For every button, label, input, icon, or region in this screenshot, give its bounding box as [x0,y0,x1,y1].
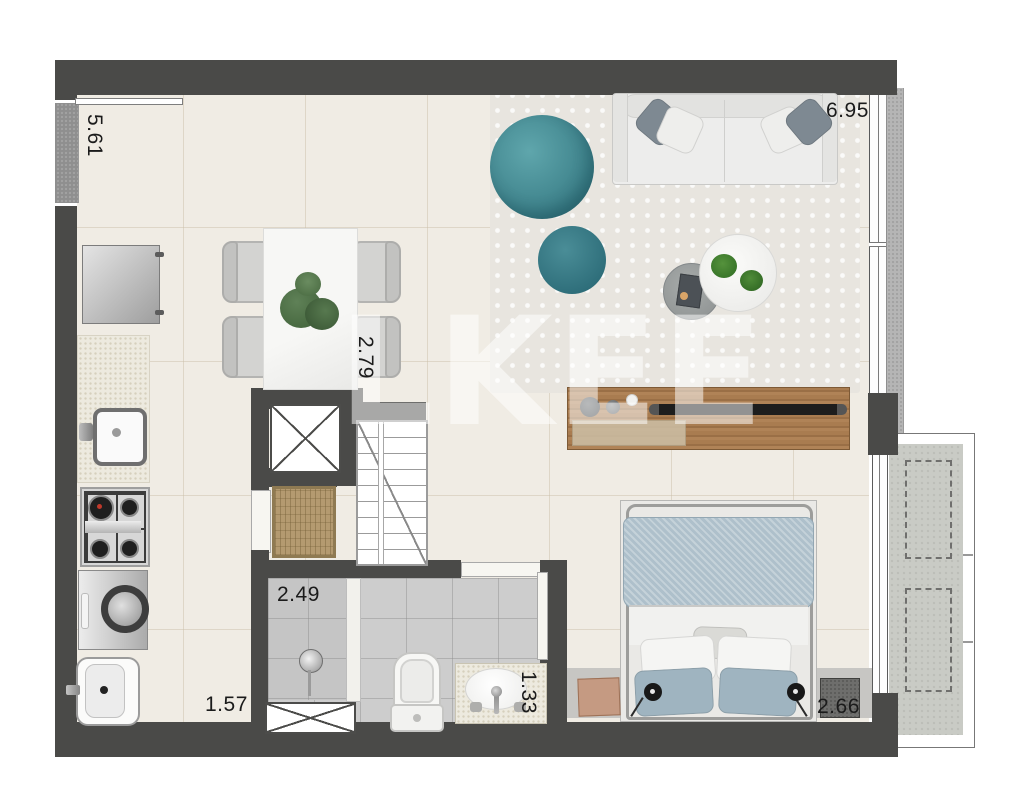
burner-rear-left [90,539,110,559]
vanity-faucet-head [491,686,502,697]
table-plant-leaf-2 [305,298,339,330]
duct-shaft [265,702,356,734]
doormat [272,486,336,558]
refrigerator-handle-bottom [155,310,164,315]
wall-bathroom-left [251,578,268,722]
reading-lamp-right [787,683,805,701]
burner-rear-right [120,539,139,558]
vanity-knob-left [470,702,482,712]
burner-knob-dot [97,504,102,509]
toilet-flush-button [413,714,421,722]
dimension-left-window: 5.61 [82,114,106,157]
washing-machine [78,570,148,650]
ottoman-small [538,226,606,294]
toilet-lid [400,659,434,703]
table-plant-leaf-3 [295,272,321,296]
floor-plan: 5.61 6.95 2.79 2.49 1.57 1.33 2.66 LKEE [0,0,1024,798]
cooktop [80,487,150,567]
refrigerator [82,245,160,324]
wall-top [55,60,897,95]
dimension-shower-width: 2.49 [277,583,320,607]
ottoman-large [490,115,594,219]
shower-glass-partition [346,578,361,702]
balcony-marking-2 [905,588,952,692]
balcony-rail-tick-2 [963,641,973,643]
kitchen-window-left [55,103,79,203]
dimension-living-width: 6.95 [826,99,869,123]
dimension-bedroom-width: 2.66 [817,695,860,719]
bathroom-door-leaf [537,572,548,660]
toilet-bowl [393,652,441,712]
watermark-text: LKEE [338,298,767,448]
wall-core-left [251,388,269,491]
reading-lamp-left [644,683,662,701]
chair-back [222,241,238,303]
tank-drain [100,686,108,694]
sofa-seat-divider [724,100,725,182]
kitchen-faucet-icon [79,423,93,441]
dimension-hall-depth: 2.79 [353,336,377,379]
pillar-right [868,393,898,455]
balcony-marking-1 [905,460,952,559]
shower-drain-icon [299,649,323,673]
window-tick-top [55,100,77,103]
exterior-wall-strip [886,88,904,433]
washer-hinge [81,593,89,629]
shower-drain-stem [308,670,311,696]
balcony-rail-tick-1 [963,554,973,556]
burner-front-right [120,498,139,517]
tank-faucet-icon [66,685,80,695]
coffee-table-plant-1 [711,254,737,278]
wall-left [55,206,77,757]
balcony-corner-block [872,693,898,757]
toilet-tank [390,704,444,732]
washer-door [101,585,149,633]
elevator-shaft [270,404,341,473]
dimension-line [75,98,183,105]
bathroom-sliding-door [461,562,547,577]
nightstand-left [577,677,620,716]
bed-duvet [623,517,814,609]
laundry-tank [76,657,140,726]
wall-bottom [55,722,898,757]
cooktop-center-band [85,521,141,533]
refrigerator-handle-top [155,252,164,257]
window-sill-tick [869,242,886,247]
kitchen-sink [93,408,147,466]
dimension-service-width: 1.57 [205,693,248,717]
chair-back [222,316,238,378]
entry-door [251,490,271,553]
dimension-bathroom-width: 1.33 [516,671,540,714]
kitchen-sink-drain [112,428,121,437]
sofa-armrest-left [613,94,628,182]
